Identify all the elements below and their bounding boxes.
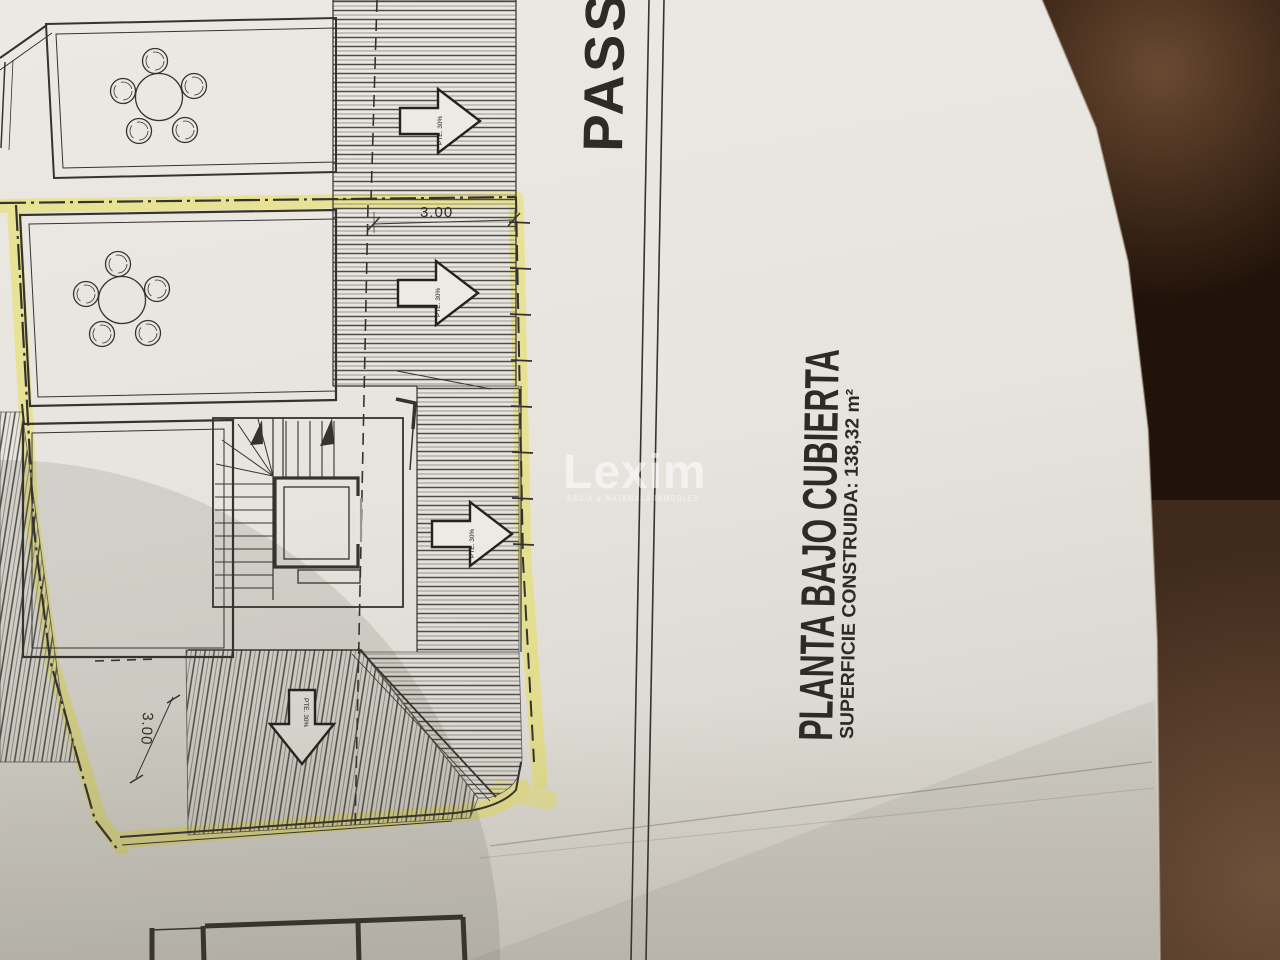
dimension-top-value: 3.00	[420, 204, 453, 221]
slope-arrow-label: PTE. 30%	[469, 529, 476, 558]
photo-of-floor-plan: PTE. 30% PTE. 30% PTE. 30% PTE. 30% PASS…	[0, 0, 1280, 960]
slope-arrow-label: PTE. 30%	[437, 116, 444, 145]
slope-arrow-label: PTE. 30%	[435, 288, 442, 317]
watermark-brand: Lexim	[563, 446, 707, 499]
watermark: Lexim BADIA & MATAMALA IMMOBLES	[563, 446, 707, 503]
floor-plan-svg: PTE. 30% PTE. 30% PTE. 30% PTE. 30% PASS…	[0, 0, 1280, 960]
watermark-tagline: BADIA & MATAMALA IMMOBLES	[567, 493, 699, 503]
paper-sheet: PTE. 30% PTE. 30% PTE. 30% PTE. 30% PASS…	[0, 0, 1280, 960]
street-label: PASSAT	[571, 0, 638, 152]
